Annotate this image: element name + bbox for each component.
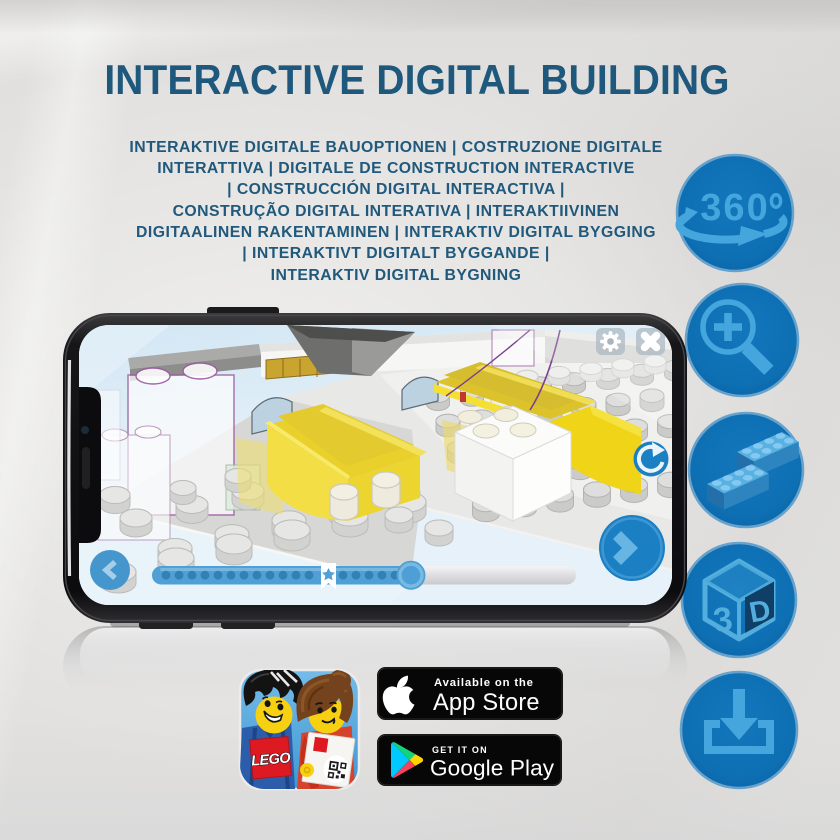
svg-text:Google Play: Google Play: [430, 756, 555, 781]
svg-text:App Store: App Store: [433, 690, 540, 716]
svg-text:Available on the: Available on the: [434, 677, 534, 689]
svg-text:GET IT ON: GET IT ON: [432, 745, 488, 755]
svg-text:360: 360: [700, 187, 769, 229]
